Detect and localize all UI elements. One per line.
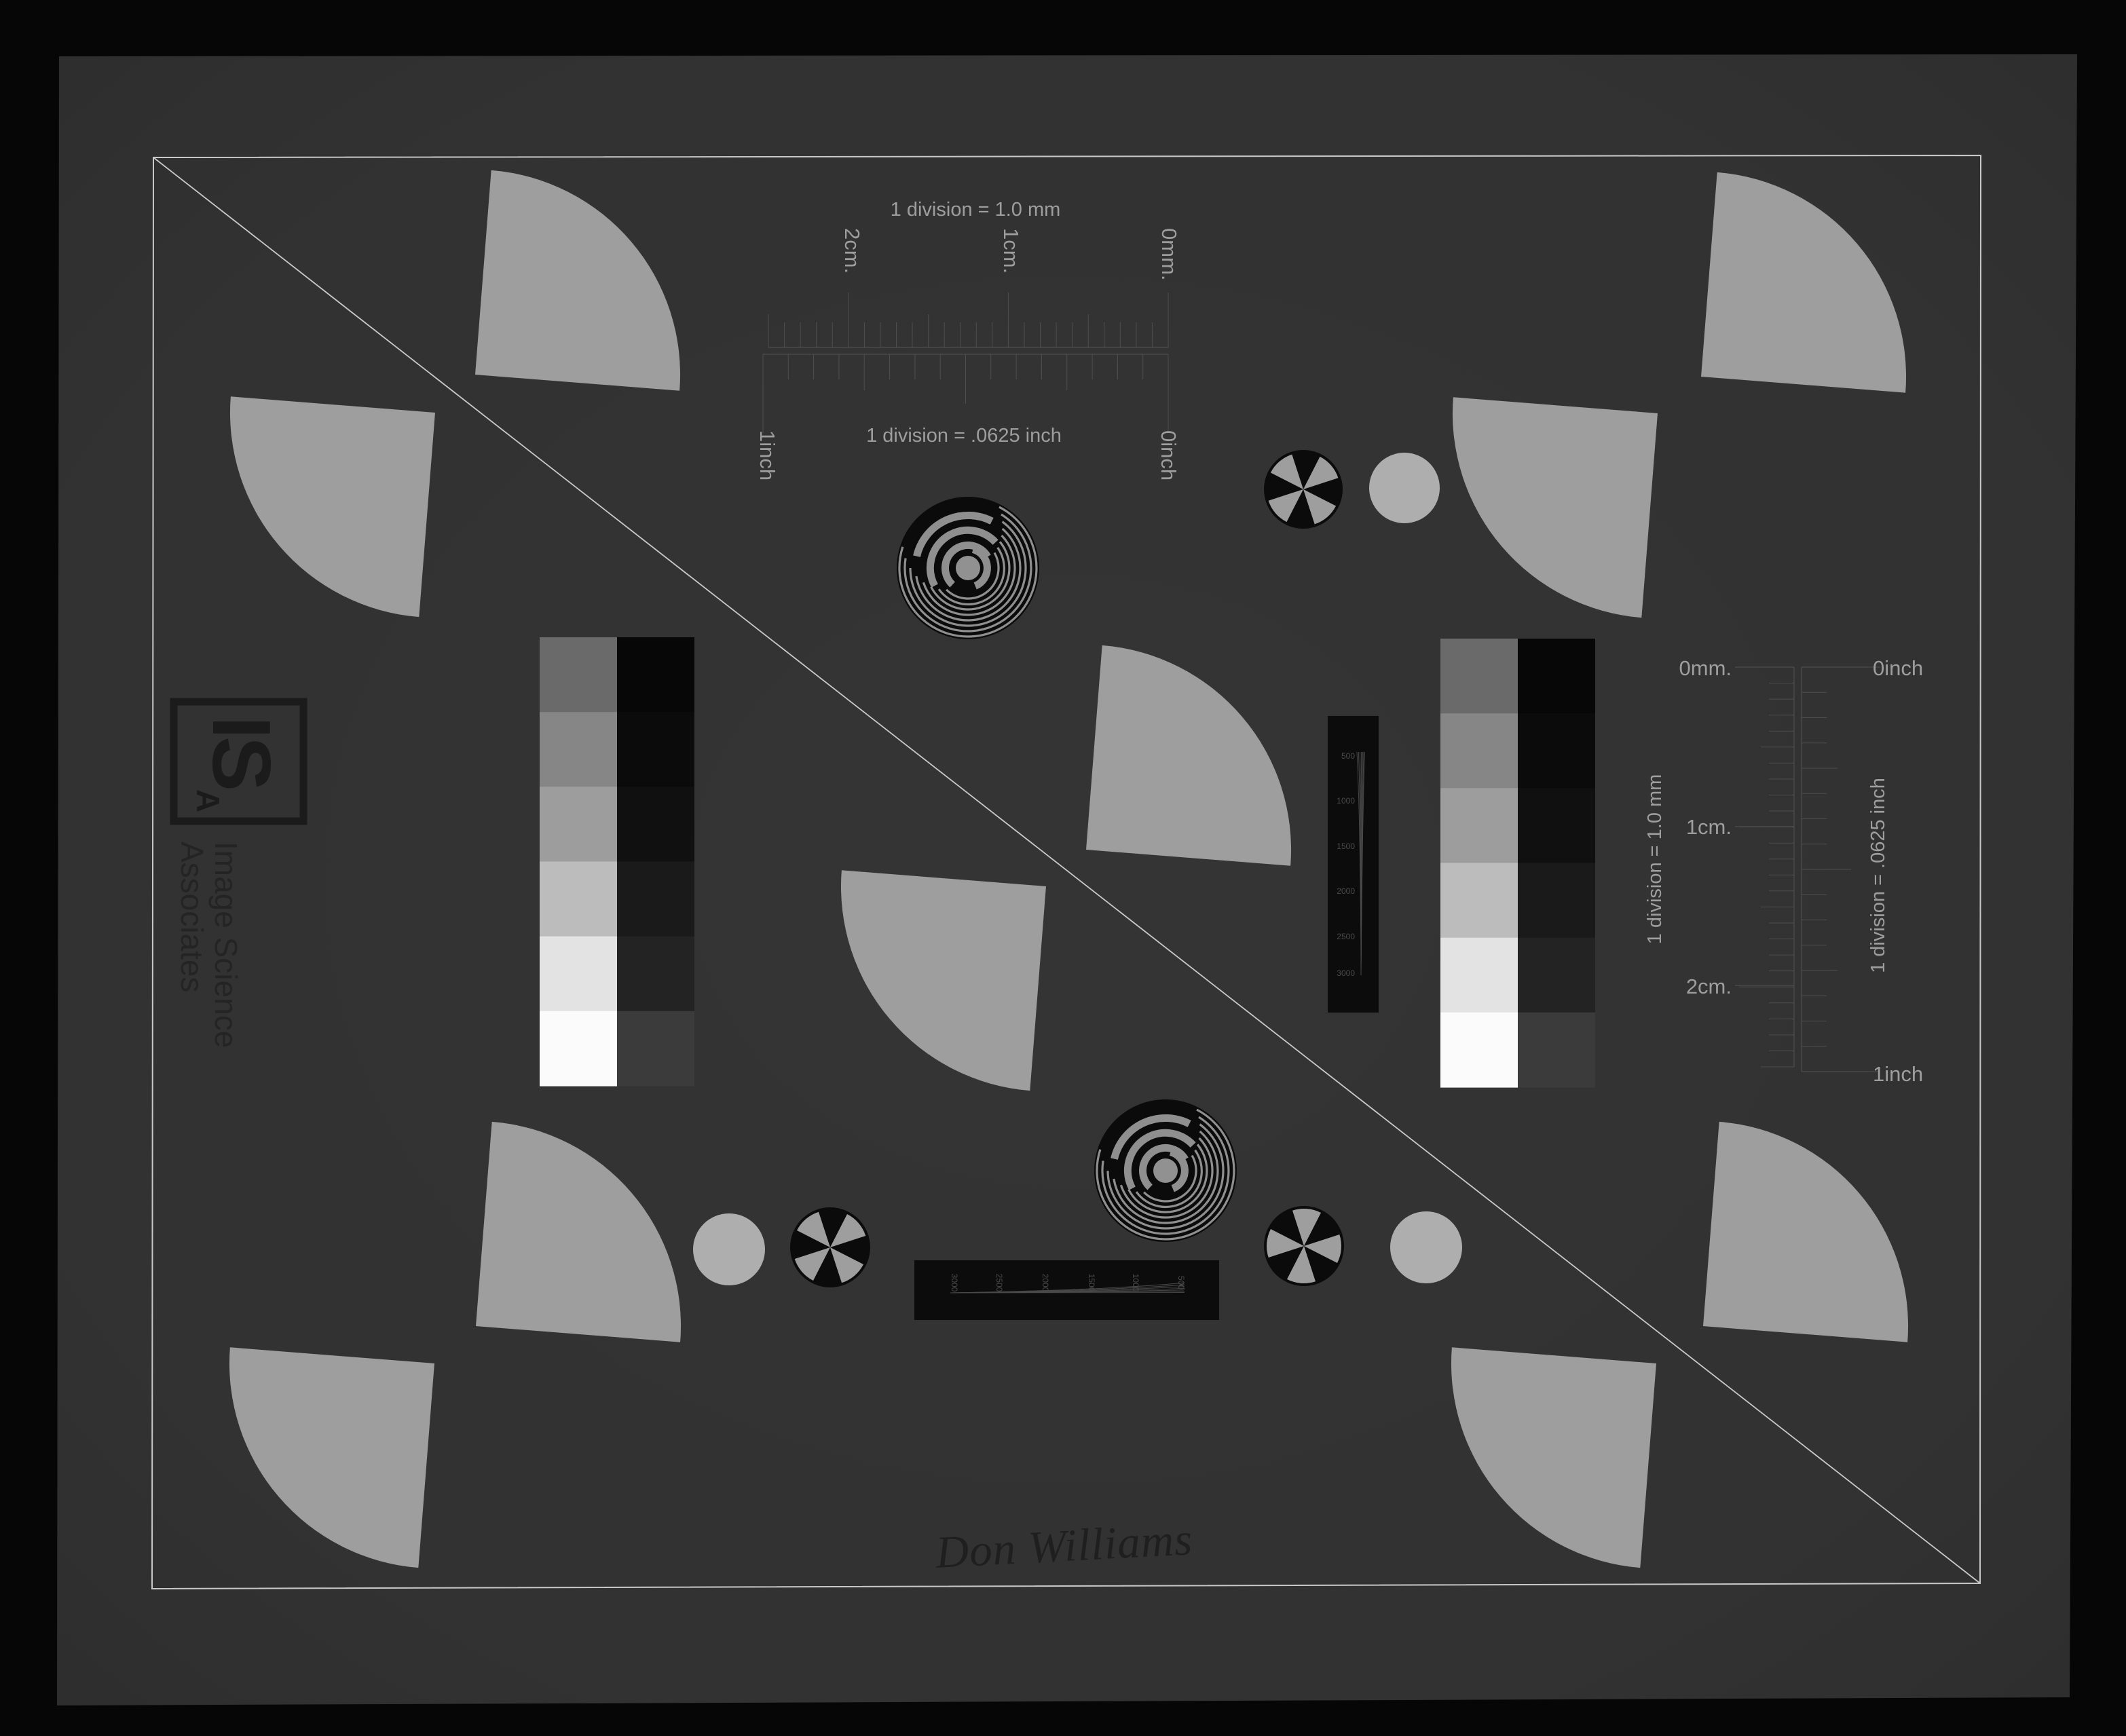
- svg-text:Associates: Associates: [174, 842, 210, 992]
- svg-text:0mm.: 0mm.: [1157, 228, 1181, 281]
- svg-text:2500: 2500: [994, 1274, 1004, 1292]
- svg-text:3000: 3000: [1337, 968, 1355, 978]
- svg-text:2000: 2000: [1041, 1274, 1050, 1292]
- svg-text:2500: 2500: [1337, 932, 1355, 941]
- svg-text:1cm.: 1cm.: [1686, 815, 1732, 839]
- svg-text:0mm.: 0mm.: [1679, 656, 1732, 680]
- svg-text:1 division = 1.0 mm: 1 division = 1.0 mm: [891, 199, 1061, 221]
- svg-text:1inch: 1inch: [756, 430, 779, 480]
- svg-text:1500: 1500: [1337, 842, 1355, 851]
- svg-text:1 division = .0625 inch: 1 division = .0625 inch: [866, 425, 1062, 447]
- svg-text:1cm.: 1cm.: [999, 228, 1023, 273]
- svg-text:1 division = .0625 inch: 1 division = .0625 inch: [1867, 778, 1889, 973]
- svg-text:1000: 1000: [1337, 796, 1355, 806]
- svg-text:2cm.: 2cm.: [840, 228, 864, 273]
- svg-text:1inch: 1inch: [1873, 1062, 1923, 1086]
- svg-text:Image Science: Image Science: [208, 842, 244, 1048]
- svg-text:IS: IS: [195, 716, 288, 789]
- svg-text:A: A: [190, 789, 226, 812]
- svg-text:0inch: 0inch: [1873, 656, 1923, 680]
- svg-text:2000: 2000: [1337, 886, 1355, 896]
- svg-text:1 division = 1.0 mm: 1 division = 1.0 mm: [1644, 774, 1666, 945]
- svg-text:0inch: 0inch: [1157, 430, 1180, 480]
- svg-text:2cm.: 2cm.: [1686, 975, 1732, 998]
- svg-text:3000: 3000: [950, 1274, 959, 1292]
- svg-text:500: 500: [1341, 751, 1355, 761]
